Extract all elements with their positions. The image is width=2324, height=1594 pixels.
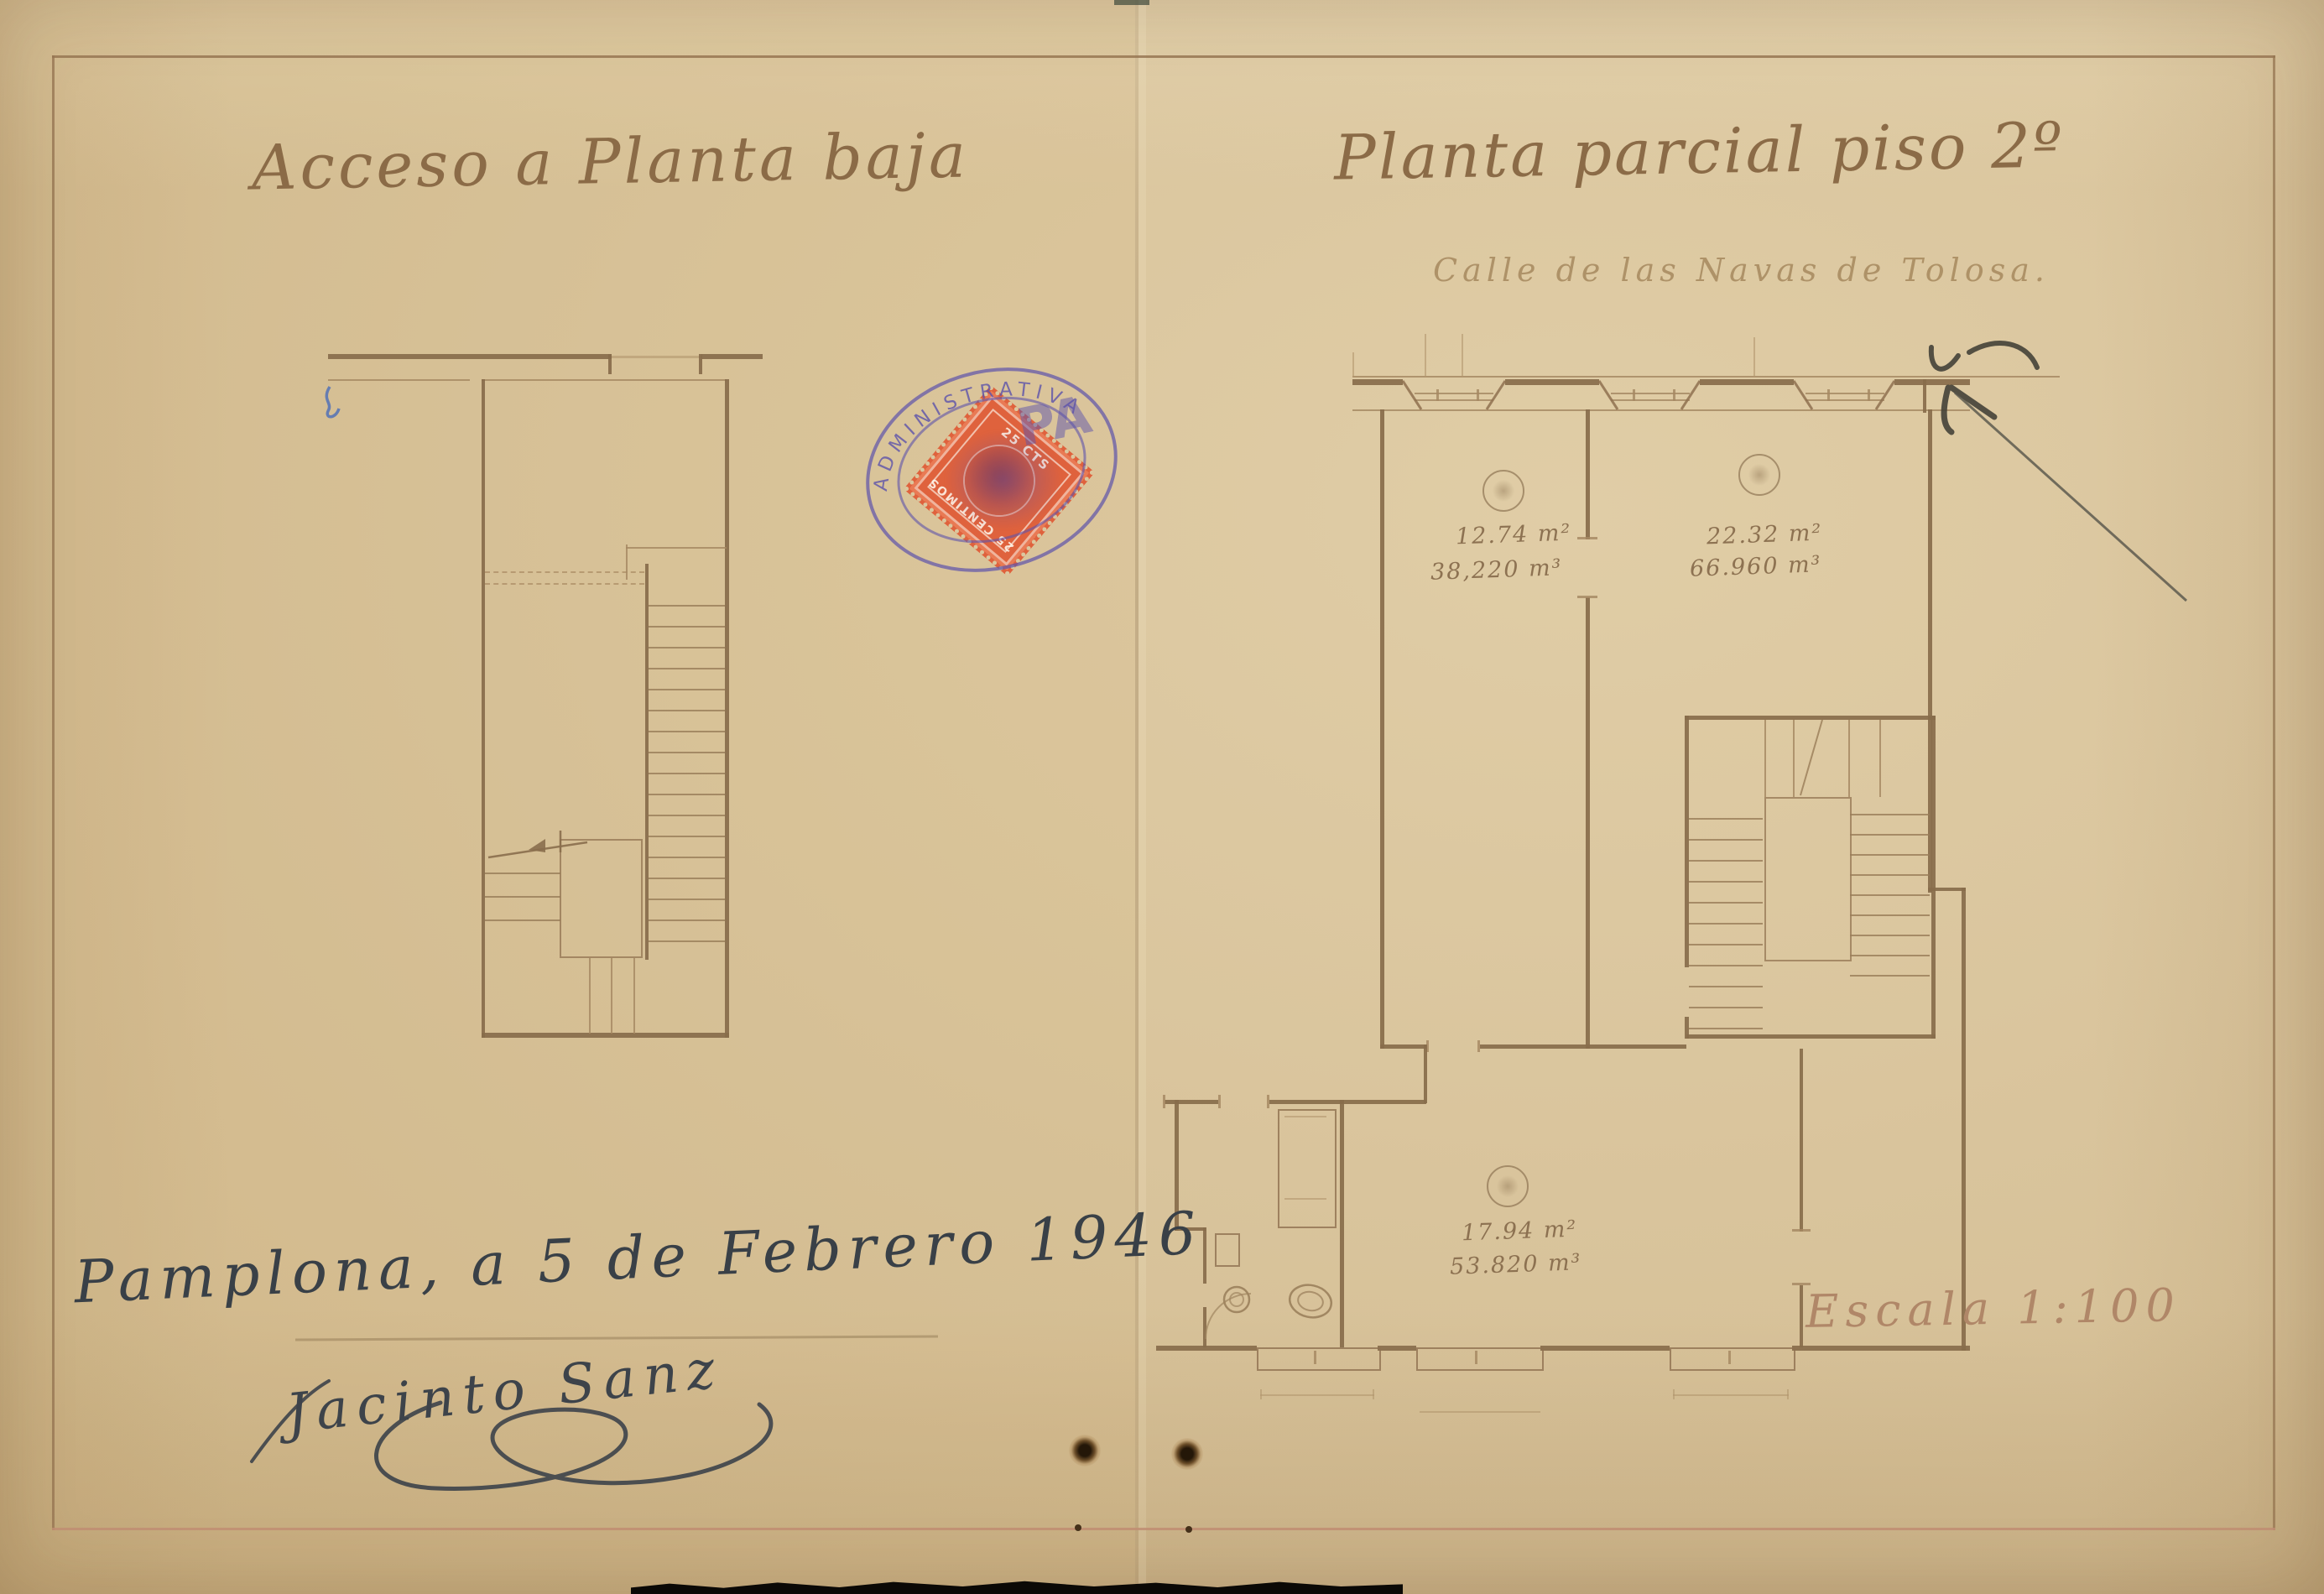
left-plan-title: Acceso a Planta baja (251, 120, 969, 205)
wall (1380, 1044, 1426, 1049)
wall (328, 354, 612, 359)
stair-core (560, 839, 643, 958)
stair-treads (1689, 799, 1763, 1034)
right-plan-title: Planta parcial piso 2º (1333, 109, 2065, 194)
door-jamb (1163, 1095, 1165, 1108)
wall (1586, 409, 1590, 539)
wall (1792, 1346, 1970, 1351)
room-area-label: 12.74 m² (1456, 520, 1572, 550)
line (626, 547, 727, 549)
window-tick (1673, 389, 1675, 401)
wall (1424, 1044, 1427, 1103)
window (1416, 1347, 1544, 1371)
window (1806, 399, 1884, 401)
window-tick (1475, 1351, 1477, 1364)
wall (1203, 1227, 1206, 1284)
wall (1800, 1049, 1803, 1232)
stair-wall (1931, 716, 1936, 1039)
room-volume-label: 38,220 m³ (1430, 555, 1563, 585)
dimension-tick (1787, 1389, 1789, 1399)
door-jamb (1577, 596, 1597, 598)
window-tick (1827, 389, 1830, 401)
wall (1156, 1346, 1257, 1351)
window-tick (1633, 389, 1635, 401)
door-jamb (1792, 1229, 1811, 1232)
dashed-line (485, 571, 644, 573)
dimension-line (1673, 1394, 1789, 1396)
wall-pier (1505, 379, 1599, 385)
cabinet-fixture (1215, 1233, 1240, 1267)
line (1352, 409, 1970, 411)
line (612, 356, 701, 358)
stair-winder (1793, 720, 1795, 797)
window (1415, 393, 1493, 394)
border-frame-right (2273, 55, 2275, 1530)
door-jamb (1218, 1095, 1221, 1108)
wall-pier (1894, 379, 1970, 385)
window (1670, 1347, 1795, 1371)
revenue-stamp: 25 CTS 25 CENTIMOS (854, 349, 1136, 606)
dimension-line (1753, 337, 1755, 378)
room-area-label: 17.94 m² (1462, 1216, 1578, 1247)
room-volume-label: 53.820 m³ (1450, 1249, 1582, 1279)
door-jamb (1577, 537, 1597, 539)
dimension-line (1425, 334, 1426, 378)
window (1611, 399, 1690, 401)
overprint-smudge (945, 430, 1062, 530)
bathtub-icon (1278, 1109, 1337, 1228)
dimension-line (1420, 1411, 1540, 1413)
scale-label: Escala 1:100 (1805, 1279, 2181, 1338)
wall (1380, 409, 1384, 1049)
scan-speck (1114, 0, 1149, 5)
room-area-label: 22.32 m² (1707, 520, 1823, 550)
street-name-label: Calle de las Navas de Tolosa. (1433, 252, 2050, 289)
border-frame-bottom (52, 1528, 2275, 1530)
wall (482, 1033, 729, 1038)
wall (1378, 1346, 1416, 1351)
bathtub-inner-line (1284, 1198, 1326, 1200)
line (633, 958, 635, 1034)
dimension-line (1260, 1394, 1374, 1396)
stair-winder (1879, 720, 1881, 797)
wall (1480, 1044, 1686, 1049)
dimension-tick (1673, 1389, 1675, 1399)
window-tick (1436, 389, 1439, 401)
burn-hole (1171, 1438, 1203, 1470)
burn-hole (1069, 1435, 1101, 1466)
room-number-circle (1482, 470, 1524, 512)
window-tick (1314, 1351, 1316, 1364)
wall-pier (1352, 379, 1403, 385)
stair-treads (485, 851, 560, 938)
wall (1540, 1346, 1670, 1351)
ink-dot (1075, 1524, 1081, 1531)
room-number-circle (1738, 454, 1780, 496)
window (1415, 399, 1493, 401)
stair-winder (1848, 720, 1850, 797)
stair-winder (1764, 720, 1766, 797)
dimension-tick (626, 544, 628, 580)
line (328, 379, 470, 381)
stair-wall (1685, 716, 1936, 720)
window-tick (1868, 389, 1870, 401)
dimension-line (1352, 352, 1354, 378)
bathtub-inner-line (1284, 1116, 1326, 1117)
line (611, 958, 612, 1034)
door-jamb (1477, 1040, 1480, 1052)
door-jamb (699, 354, 702, 374)
wall (725, 379, 729, 1038)
line (589, 958, 591, 1034)
wall (1923, 379, 1926, 413)
line (482, 379, 727, 381)
door-jamb (1267, 1095, 1269, 1108)
stair-treads (649, 586, 725, 960)
wall (1269, 1100, 1426, 1104)
dimension-tick (1373, 1389, 1374, 1399)
scanned-plan-page: Acceso a Planta baja Planta parcial piso… (0, 0, 2324, 1594)
line (1352, 376, 2060, 378)
door-jamb (608, 354, 612, 374)
stair-wall (1686, 1034, 1936, 1039)
border-frame-top (52, 55, 2275, 58)
room-volume-label: 66.960 m³ (1690, 551, 1822, 581)
ink-dot (1185, 1526, 1192, 1533)
wall (1962, 888, 1966, 1351)
stair-core (1764, 797, 1852, 961)
room-number-circle (1487, 1165, 1529, 1207)
wall (482, 379, 485, 1038)
window-tick (1477, 389, 1479, 401)
wall (1586, 597, 1590, 1049)
wall-pier (1700, 379, 1794, 385)
wall (1203, 1307, 1206, 1347)
wall (701, 354, 763, 359)
window (1806, 393, 1884, 394)
border-frame-left (52, 55, 55, 1530)
window (1257, 1347, 1381, 1371)
wall (1340, 1100, 1344, 1347)
dashed-line (485, 583, 644, 585)
window-tick (1728, 1351, 1731, 1364)
dimension-tick (1260, 1389, 1262, 1399)
wall (1800, 1285, 1803, 1347)
window (1611, 393, 1690, 394)
stair-treads (1850, 795, 1930, 992)
fold-highlight (1139, 0, 1146, 1594)
dimension-line (1462, 334, 1463, 378)
wall (1165, 1100, 1218, 1104)
